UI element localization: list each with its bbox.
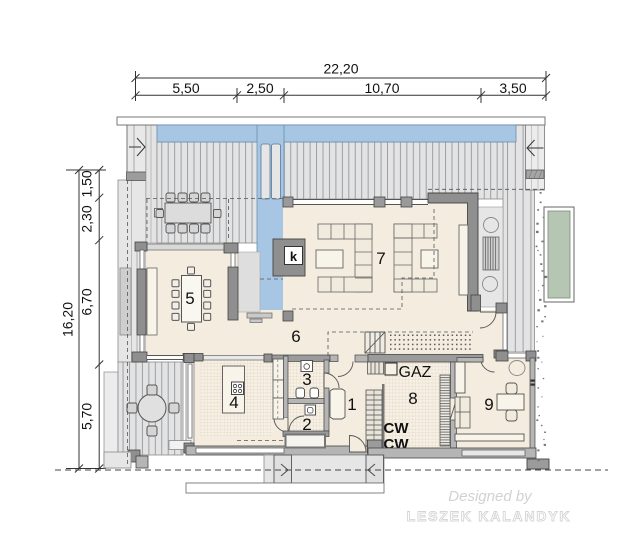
svg-text:1,50: 1,50: [79, 170, 95, 197]
svg-text:5,50: 5,50: [172, 80, 199, 96]
svg-text:6,70: 6,70: [79, 288, 95, 315]
svg-text:5: 5: [185, 289, 194, 308]
svg-text:7: 7: [376, 249, 385, 268]
svg-text:Designed by: Designed by: [448, 488, 533, 505]
svg-text:16,20: 16,20: [60, 302, 76, 337]
svg-text:10,70: 10,70: [364, 80, 399, 96]
svg-text:LESZEK KALANDYK: LESZEK KALANDYK: [407, 508, 572, 524]
svg-text:k: k: [290, 249, 298, 264]
svg-text:8: 8: [408, 389, 417, 408]
svg-text:6: 6: [291, 327, 300, 346]
svg-text:2,50: 2,50: [246, 80, 273, 96]
svg-text:9: 9: [484, 395, 493, 414]
svg-text:2,30: 2,30: [79, 205, 95, 232]
svg-text:3: 3: [302, 370, 311, 389]
svg-text:1: 1: [347, 395, 356, 414]
svg-text:22,20: 22,20: [323, 61, 358, 77]
svg-text:GAZ: GAZ: [399, 364, 432, 381]
svg-text:3,50: 3,50: [499, 80, 526, 96]
svg-text:4: 4: [229, 393, 238, 412]
svg-text:CW: CW: [384, 420, 410, 437]
svg-text:2: 2: [302, 415, 311, 434]
svg-text:5,70: 5,70: [79, 403, 95, 430]
